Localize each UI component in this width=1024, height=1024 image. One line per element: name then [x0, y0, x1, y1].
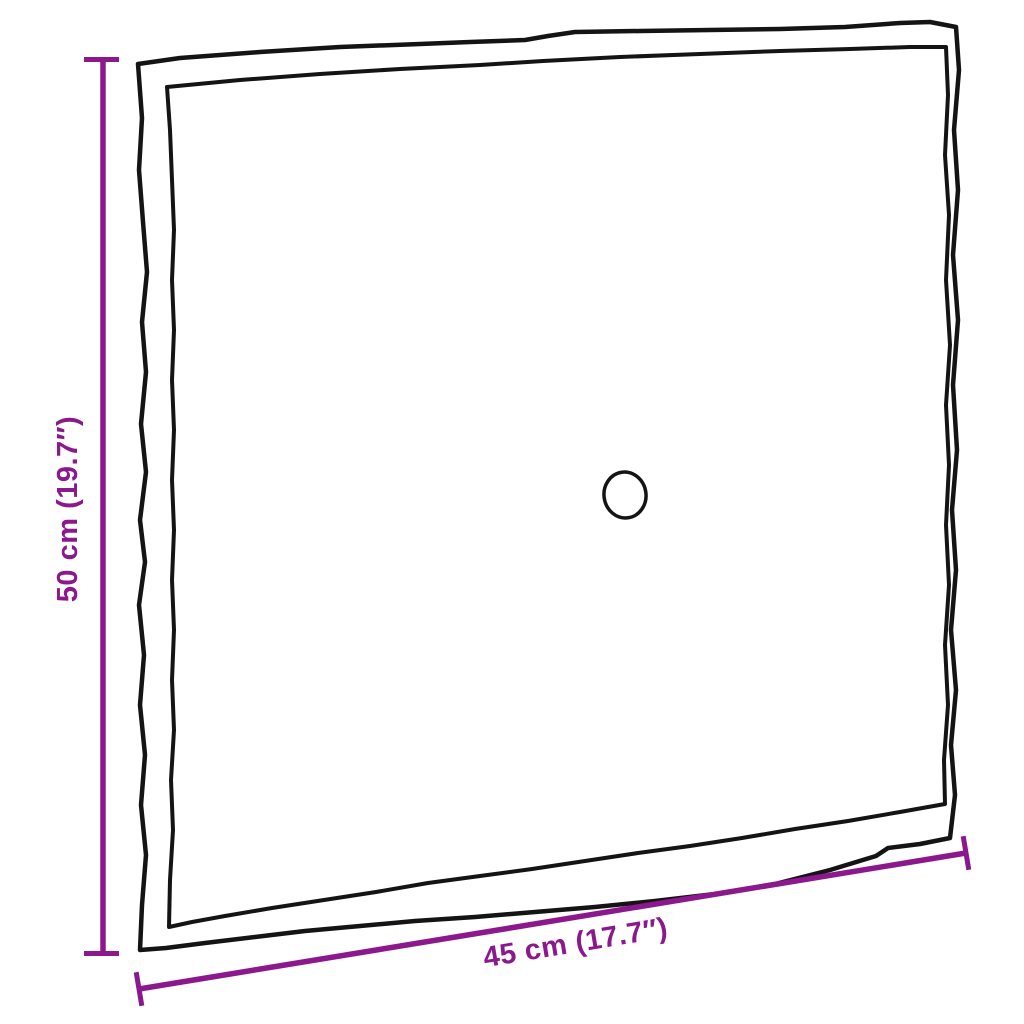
cushion-button-icon	[601, 469, 649, 520]
cushion-outline-inner	[167, 47, 950, 927]
product-dimension-diagram: 50 cm (19.7″) 45 cm (17.7″)	[0, 0, 1024, 1024]
width-dimension-left-tick	[136, 972, 142, 1006]
cushion-drawing	[138, 22, 959, 950]
width-dimension-right-tick	[963, 836, 969, 870]
width-dimension-line	[139, 853, 966, 989]
cushion-outline-outer	[138, 22, 959, 950]
width-dimension: 45 cm (17.7″)	[136, 836, 969, 1006]
height-dimension: 50 cm (19.7″)	[52, 59, 119, 954]
diagram-svg: 50 cm (19.7″) 45 cm (17.7″)	[0, 0, 1024, 1024]
height-dimension-label: 50 cm (19.7″)	[52, 416, 84, 602]
width-dimension-label: 45 cm (17.7″)	[481, 912, 670, 974]
